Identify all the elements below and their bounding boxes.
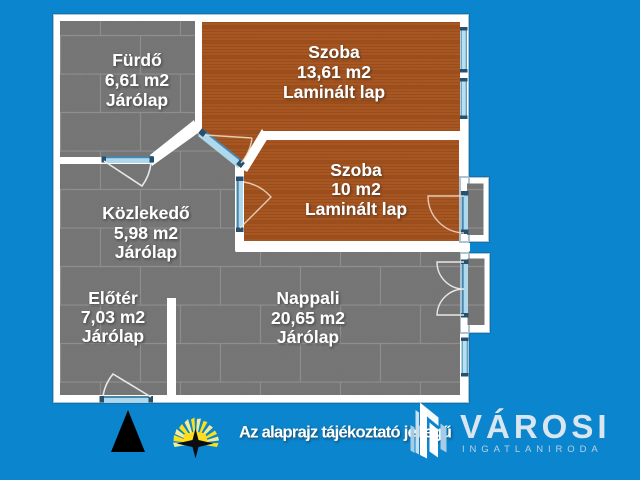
svg-text:Közlekedő: Közlekedő [102,203,190,223]
svg-text:Előtér: Előtér [88,288,138,308]
svg-text:5,98 m2: 5,98 m2 [114,223,178,243]
svg-text:13,61 m2: 13,61 m2 [297,62,371,82]
svg-text:10 m2: 10 m2 [331,179,381,199]
svg-text:6,61 m2: 6,61 m2 [105,70,169,90]
svg-text:Járólap: Járólap [106,90,168,110]
svg-text:Szoba: Szoba [330,160,382,180]
svg-text:Szoba: Szoba [308,42,360,62]
svg-text:Fürdő: Fürdő [112,50,162,70]
svg-text:Nappali: Nappali [276,288,339,308]
svg-text:VÁROSI: VÁROSI [460,408,611,445]
svg-text:Az alaprajz tájékoztató jelleg: Az alaprajz tájékoztató jellegű [239,424,452,442]
svg-text:Járólap: Járólap [277,327,339,347]
svg-text:Laminált lap: Laminált lap [283,82,385,102]
svg-text:INGATLANIRODA: INGATLANIRODA [462,444,603,455]
svg-text:Laminált lap: Laminált lap [305,199,407,219]
svg-text:20,65 m2: 20,65 m2 [271,308,345,328]
svg-text:7,03 m2: 7,03 m2 [81,307,145,327]
svg-text:Járólap: Járólap [82,326,144,346]
svg-text:Járólap: Járólap [115,242,177,262]
